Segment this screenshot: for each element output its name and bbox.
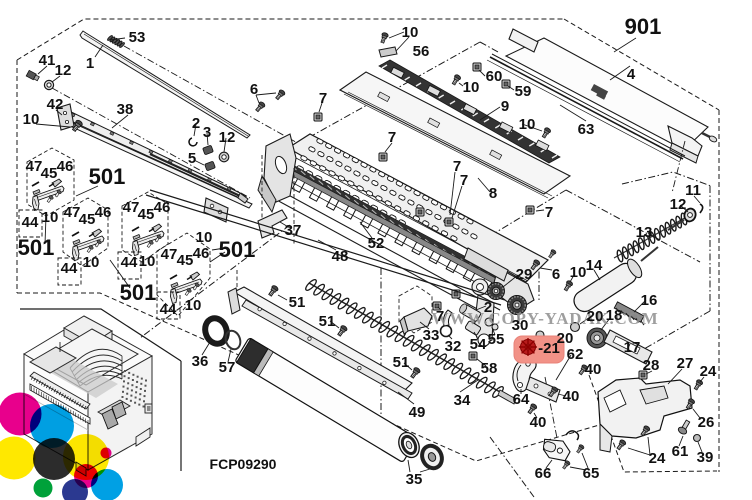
svg-text:46: 46 — [154, 199, 171, 216]
svg-text:45: 45 — [41, 165, 58, 182]
svg-text:51: 51 — [319, 313, 336, 330]
svg-text:51: 51 — [289, 294, 306, 311]
svg-text:1: 1 — [86, 55, 94, 72]
svg-text:40: 40 — [563, 388, 580, 405]
svg-text:44: 44 — [121, 254, 138, 271]
svg-text:30: 30 — [512, 317, 529, 334]
svg-text:37: 37 — [285, 222, 302, 239]
svg-text:8: 8 — [489, 185, 497, 202]
svg-text:501: 501 — [219, 237, 256, 262]
svg-text:49: 49 — [409, 404, 426, 421]
svg-text:3: 3 — [203, 124, 211, 141]
svg-text:10: 10 — [196, 229, 213, 246]
svg-text:46: 46 — [193, 245, 210, 262]
svg-text:10: 10 — [463, 79, 480, 96]
svg-text:2: 2 — [192, 115, 200, 132]
svg-text:40: 40 — [585, 361, 602, 378]
svg-text:55: 55 — [488, 331, 505, 348]
svg-text:10: 10 — [519, 116, 536, 133]
svg-text:41: 41 — [39, 52, 56, 69]
svg-text:12: 12 — [670, 196, 687, 213]
svg-text:16: 16 — [641, 292, 658, 309]
svg-text:66: 66 — [535, 465, 552, 482]
svg-text:52: 52 — [368, 235, 385, 252]
svg-text:54: 54 — [470, 336, 487, 353]
svg-text:12: 12 — [219, 129, 236, 146]
svg-text:2: 2 — [484, 299, 492, 316]
svg-text:32: 32 — [445, 338, 462, 355]
svg-text:7: 7 — [545, 204, 553, 221]
svg-text:6: 6 — [552, 266, 560, 283]
svg-text:10: 10 — [402, 24, 419, 41]
svg-text:44: 44 — [160, 301, 177, 318]
svg-text:WWW.COPY-YADAK.COM: WWW.COPY-YADAK.COM — [432, 309, 659, 328]
svg-text:9: 9 — [501, 98, 509, 115]
svg-text:33: 33 — [423, 327, 440, 344]
svg-text:27: 27 — [677, 355, 694, 372]
svg-text:26: 26 — [698, 414, 715, 431]
svg-text:11: 11 — [685, 182, 701, 199]
svg-text:38: 38 — [117, 101, 134, 118]
svg-text:24: 24 — [649, 450, 666, 467]
svg-text:64: 64 — [513, 391, 530, 408]
svg-text:60: 60 — [486, 68, 503, 85]
svg-text:40: 40 — [530, 414, 547, 431]
svg-text:501: 501 — [120, 280, 157, 305]
svg-text:4: 4 — [627, 66, 636, 83]
svg-text:7: 7 — [436, 308, 444, 325]
svg-text:34: 34 — [454, 392, 471, 409]
svg-text:59: 59 — [515, 83, 532, 100]
svg-text:39: 39 — [697, 449, 714, 466]
svg-text:12: 12 — [55, 62, 72, 79]
svg-text:46: 46 — [95, 204, 112, 221]
svg-text:45: 45 — [138, 206, 155, 223]
svg-text:FCP09290: FCP09290 — [210, 456, 277, 472]
svg-text:10: 10 — [23, 111, 40, 128]
svg-text:61: 61 — [672, 443, 689, 460]
svg-text:10: 10 — [42, 209, 59, 226]
svg-text:58: 58 — [481, 360, 498, 377]
svg-text:29: 29 — [516, 266, 533, 283]
svg-text:901: 901 — [625, 14, 662, 39]
svg-text:35: 35 — [406, 471, 423, 488]
svg-text:45: 45 — [177, 252, 194, 269]
svg-text:10: 10 — [570, 264, 587, 281]
svg-text:44: 44 — [22, 214, 39, 231]
svg-text:53: 53 — [129, 29, 146, 46]
svg-text:56: 56 — [413, 43, 430, 60]
svg-text:65: 65 — [583, 465, 600, 482]
svg-text:13: 13 — [636, 224, 653, 241]
svg-text:42: 42 — [47, 96, 64, 113]
svg-text:48: 48 — [332, 248, 349, 265]
svg-text:501: 501 — [18, 235, 55, 260]
svg-text:7: 7 — [388, 129, 396, 146]
svg-text:36: 36 — [192, 353, 209, 370]
svg-text:51: 51 — [393, 354, 410, 371]
svg-text:63: 63 — [578, 121, 595, 138]
svg-text:17: 17 — [624, 339, 641, 356]
svg-text:7: 7 — [319, 90, 327, 107]
svg-text:24: 24 — [700, 363, 717, 380]
svg-text:10: 10 — [139, 253, 156, 270]
svg-text:7: 7 — [460, 172, 468, 189]
svg-text:20: 20 — [587, 308, 604, 325]
svg-text:501: 501 — [89, 164, 126, 189]
svg-text:10: 10 — [185, 297, 202, 314]
svg-text:6: 6 — [250, 81, 258, 98]
svg-text:20: 20 — [557, 330, 574, 347]
svg-text:47: 47 — [161, 246, 178, 263]
svg-text:10: 10 — [83, 254, 100, 271]
svg-text:46: 46 — [57, 158, 74, 175]
svg-text:44: 44 — [61, 260, 78, 277]
svg-text:45: 45 — [79, 211, 96, 228]
svg-text:62: 62 — [567, 346, 584, 363]
svg-text:28: 28 — [643, 357, 660, 374]
svg-text:18: 18 — [606, 307, 623, 324]
svg-text:57: 57 — [219, 359, 236, 376]
svg-text:5: 5 — [188, 150, 196, 167]
svg-text:14: 14 — [586, 257, 603, 274]
